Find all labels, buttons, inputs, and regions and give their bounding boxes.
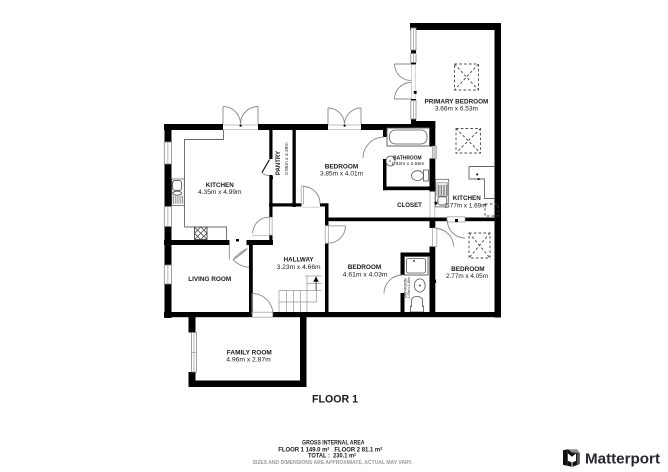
svg-text:SIZES AND DIMENSIONS ARE APPRO: SIZES AND DIMENSIONS ARE APPROXIMATE, AC… [253, 460, 413, 466]
svg-text:BEDROOM: BEDROOM [451, 266, 485, 273]
svg-text:LIVING ROOM: LIVING ROOM [188, 276, 231, 283]
svg-text:GROSS INTERNAL AREA: GROSS INTERNAL AREA [302, 440, 365, 446]
svg-text:0.95m x 3.39m: 0.95m x 3.39m [284, 142, 290, 175]
svg-text:KITCHEN: KITCHEN [453, 195, 481, 202]
svg-text:3.23m x 4.66m: 3.23m x 4.66m [277, 264, 321, 271]
svg-text:TOTAL : 230.1 m²: TOTAL : 230.1 m² [308, 452, 356, 459]
svg-text:4.61m x 4.03m: 4.61m x 4.03m [343, 271, 388, 278]
svg-text:1.92m x 2.66m: 1.92m x 2.66m [391, 161, 424, 167]
svg-text:3.66m x 6.53m: 3.66m x 6.53m [435, 105, 478, 112]
svg-text:PANTRY: PANTRY [275, 150, 282, 175]
svg-text:BEDROOM: BEDROOM [325, 163, 359, 170]
svg-text:1.43m x 1.46m: 1.43m x 1.46m [407, 277, 411, 298]
svg-text:4.96m x 2.87m: 4.96m x 2.87m [226, 356, 271, 363]
svg-text:KITCHEN: KITCHEN [206, 182, 234, 189]
svg-text:FLOOR 1 149.0 m² FLOOR 2 81.: FLOOR 1 149.0 m² FLOOR 2 81.1 m² [278, 446, 382, 453]
svg-text:BEDROOM: BEDROOM [348, 264, 382, 271]
svg-text:FLOOR 1: FLOOR 1 [312, 394, 358, 406]
svg-text:2.77m x 4.05m: 2.77m x 4.05m [446, 273, 488, 280]
svg-text:HALLWAY: HALLWAY [284, 257, 315, 264]
svg-text:BATHROOM: BATHROOM [393, 156, 422, 162]
svg-text:2.77m x 1.69m: 2.77m x 1.69m [445, 202, 487, 209]
svg-text:4.35m x 4.99m: 4.35m x 4.99m [198, 189, 242, 196]
svg-text:Matterport: Matterport [585, 451, 660, 467]
svg-text:3.85m x 4.01m: 3.85m x 4.01m [320, 171, 363, 178]
svg-text:CLOSET: CLOSET [397, 202, 422, 209]
